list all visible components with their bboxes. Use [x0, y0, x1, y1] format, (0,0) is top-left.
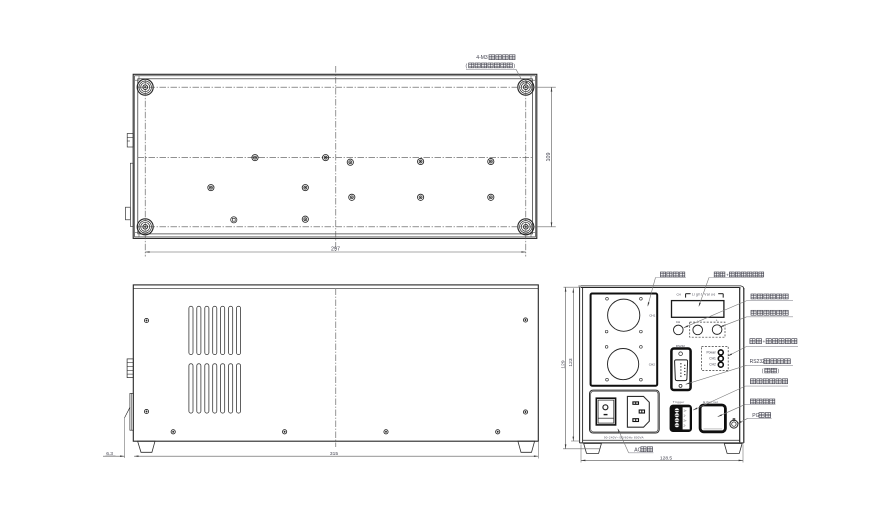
svg-text:): )	[513, 64, 515, 70]
svg-text:RS232: RS232	[750, 359, 766, 365]
svg-text:315: 315	[330, 451, 338, 457]
svg-text:123: 123	[568, 358, 574, 366]
svg-text:CH: CH	[677, 292, 681, 296]
svg-text:CH2: CH2	[649, 362, 655, 366]
svg-text:Trigger: Trigger	[673, 400, 685, 404]
svg-text:128.5: 128.5	[660, 455, 673, 461]
svg-text:CH2: CH2	[709, 363, 716, 367]
svg-text:4-M3: 4-M3	[476, 55, 488, 61]
svg-text:RS232: RS232	[676, 344, 686, 348]
svg-text:1-: 1-	[684, 413, 686, 417]
svg-text:Power: Power	[706, 351, 716, 355]
svg-text:2-: 2-	[684, 423, 686, 427]
svg-text:CH: CH	[676, 320, 680, 324]
svg-text:+: +	[716, 319, 718, 323]
svg-text:2+: 2+	[684, 418, 687, 422]
svg-text:109: 109	[546, 153, 552, 162]
svg-text:1+: 1+	[684, 409, 687, 413]
svg-text:297: 297	[331, 246, 340, 252]
svg-text:(: (	[466, 64, 468, 70]
svg-text:90-240V~/50/60Hz 800VA: 90-240V~/50/60Hz 800VA	[604, 436, 644, 440]
svg-text:CH1: CH1	[649, 313, 655, 317]
svg-text:+: +	[763, 340, 766, 345]
svg-text:129: 129	[560, 360, 566, 368]
svg-text:Light Value: Light Value	[692, 292, 716, 296]
svg-text:CH1: CH1	[709, 357, 716, 361]
